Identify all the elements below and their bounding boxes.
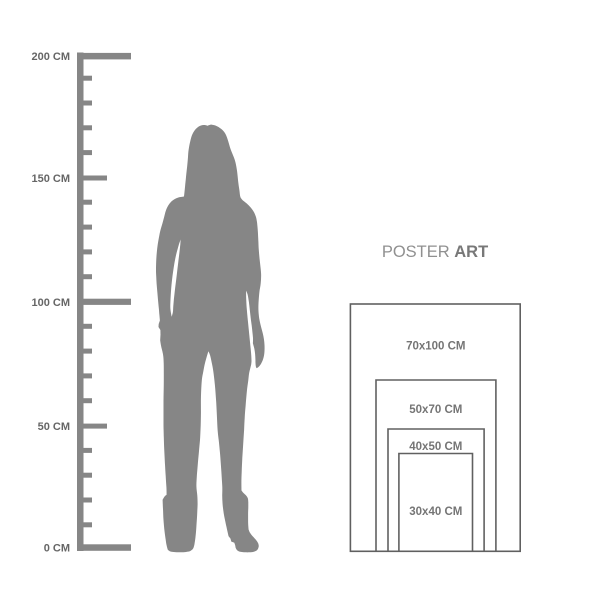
svg-text:30x40 CM: 30x40 CM [409,506,462,518]
svg-text:50x70 CM: 50x70 CM [409,404,462,416]
svg-text:150 CM: 150 CM [31,173,70,185]
svg-text:100 CM: 100 CM [31,297,70,309]
svg-text:200 CM: 200 CM [31,51,70,63]
svg-text:50 CM: 50 CM [38,421,70,433]
svg-text:70x100 CM: 70x100 CM [406,341,465,353]
svg-text:40x50 CM: 40x50 CM [409,441,462,453]
svg-text:0 CM: 0 CM [44,543,70,555]
svg-text:POSTER ART: POSTER ART [382,243,488,261]
